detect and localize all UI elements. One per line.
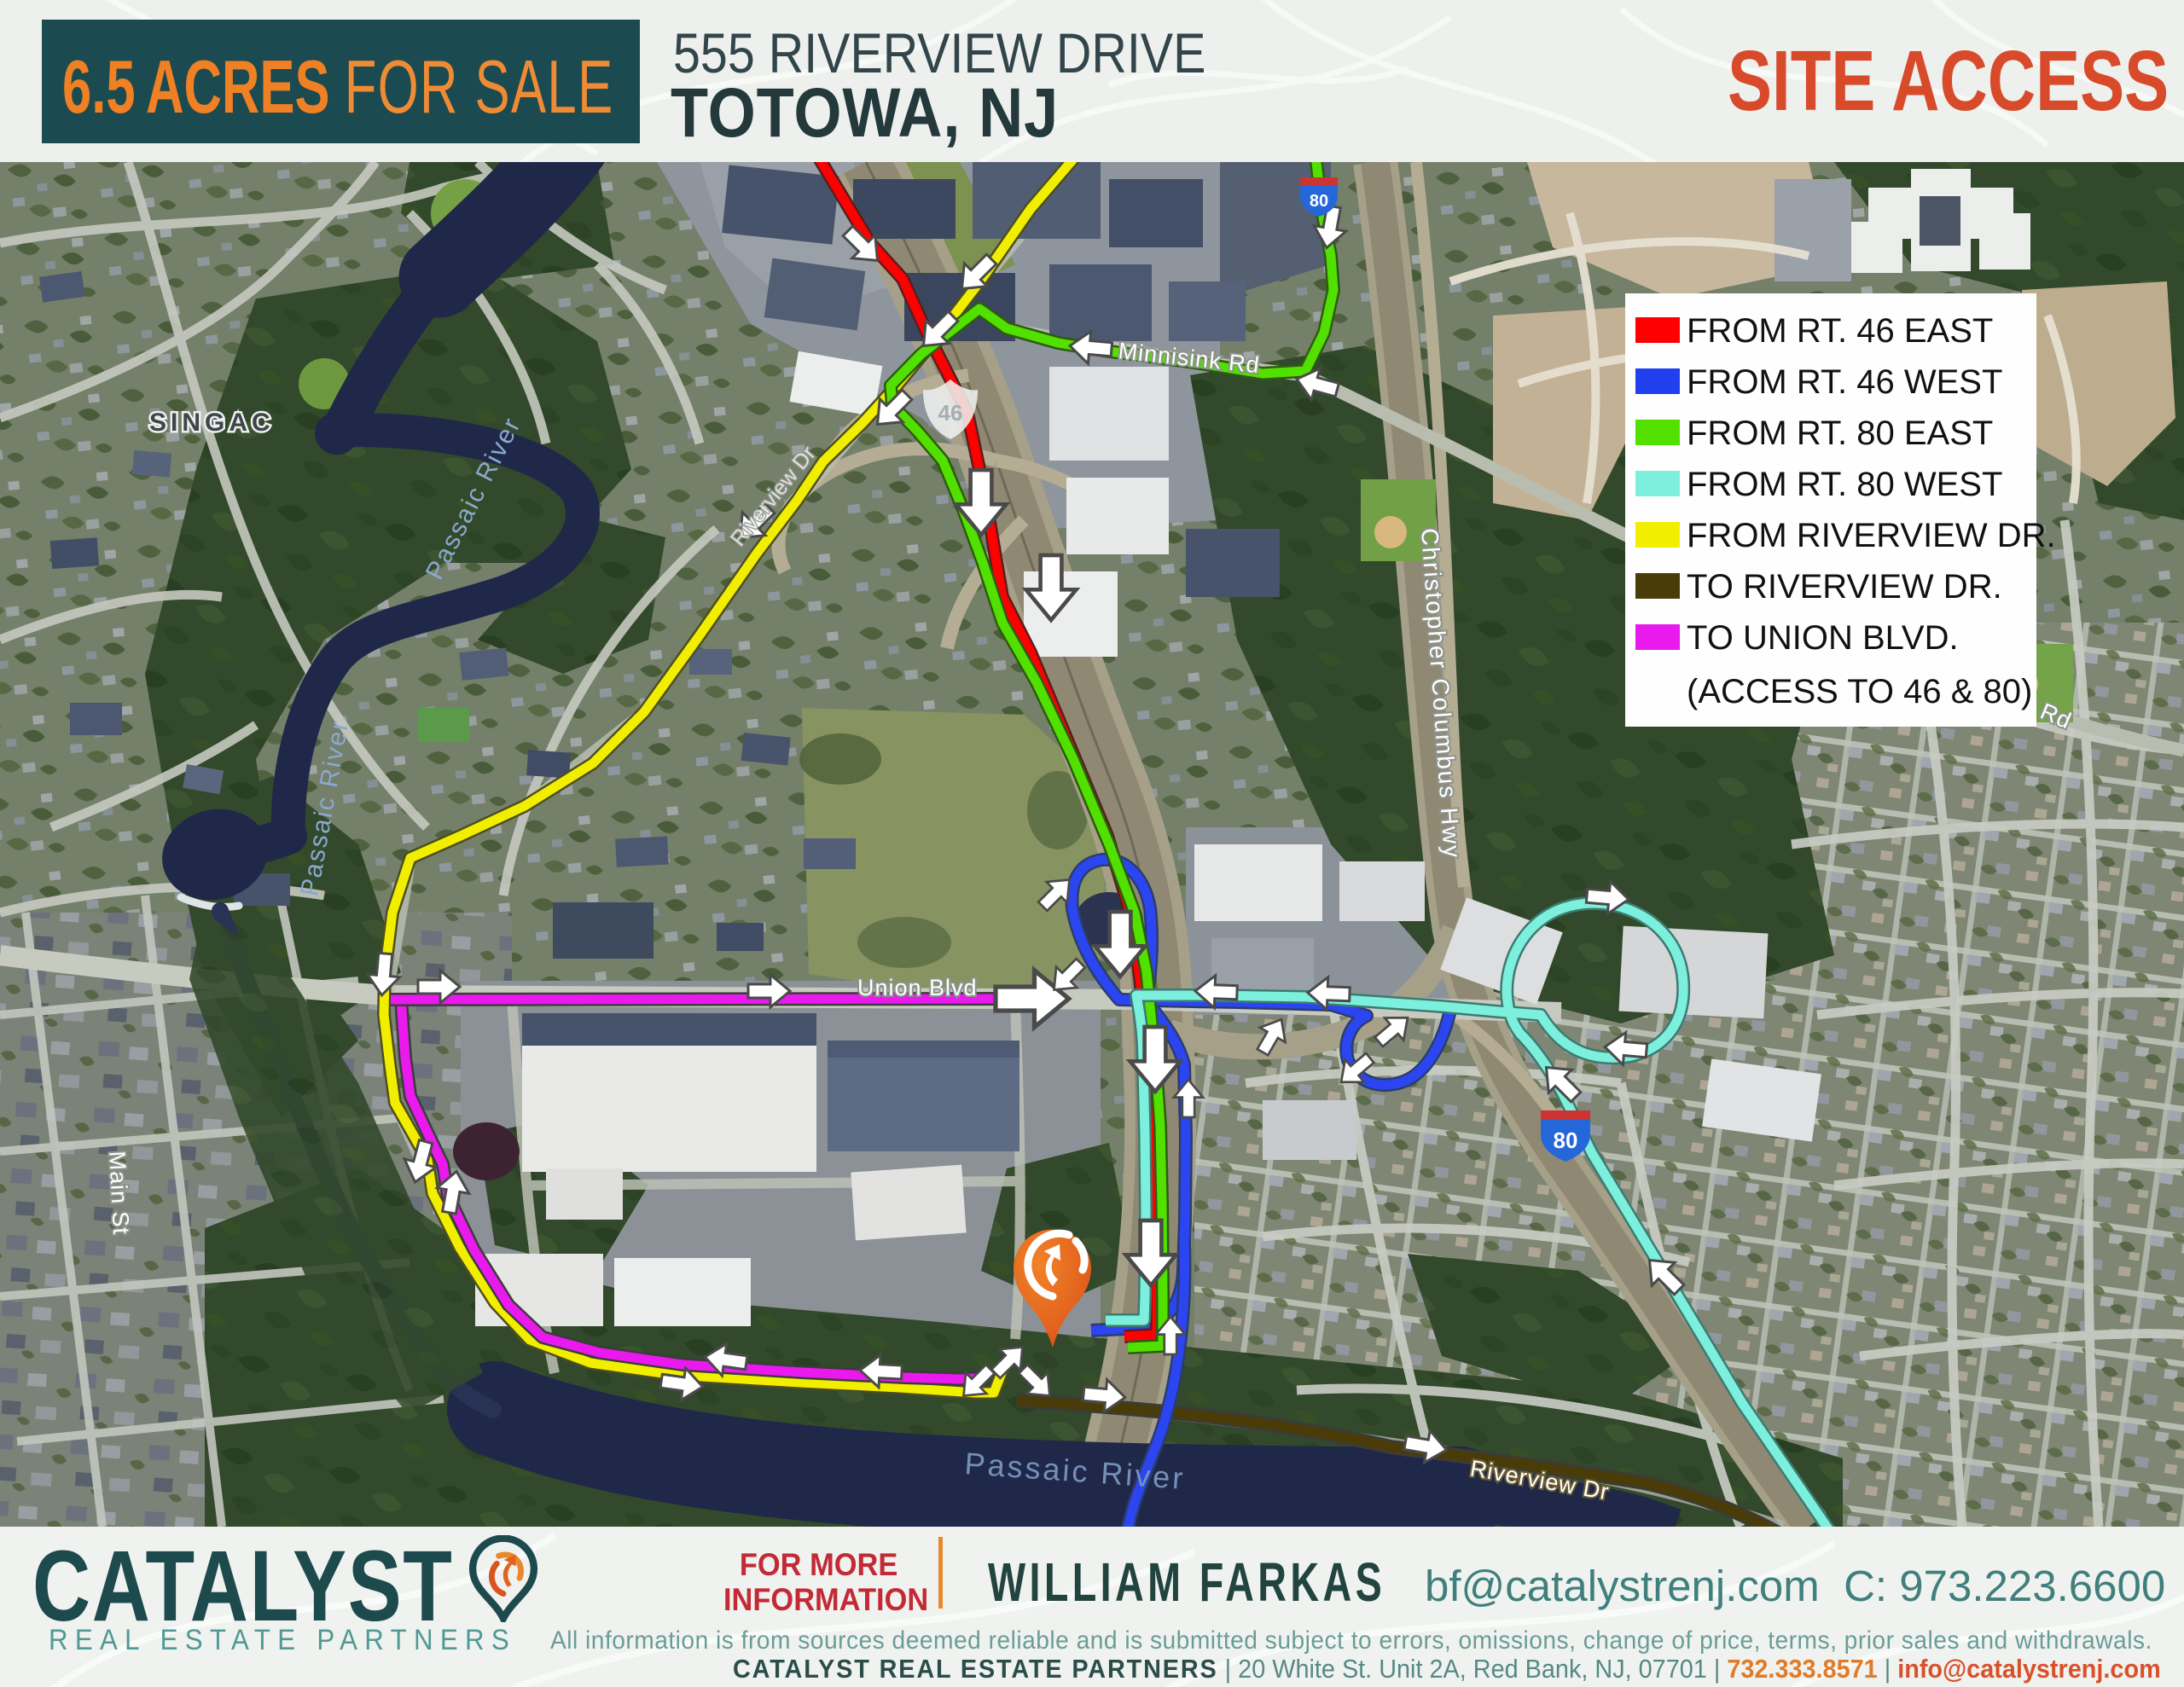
svg-text:FROM RT. 46 EAST: FROM RT. 46 EAST: [1687, 312, 1993, 350]
svg-text:80: 80: [1554, 1128, 1578, 1153]
svg-text:SINGAC: SINGAC: [149, 409, 275, 437]
svg-text:FROM RT. 80 WEST: FROM RT. 80 WEST: [1687, 466, 2002, 503]
svg-text:(ACCESS TO 46 & 80): (ACCESS TO 46 & 80): [1687, 673, 2032, 710]
svg-text:TO UNION BLVD.: TO UNION BLVD.: [1687, 619, 1959, 657]
svg-text:FROM RT. 46 WEST: FROM RT. 46 WEST: [1687, 363, 2002, 401]
svg-text:TO RIVERVIEW DR.: TO RIVERVIEW DR.: [1687, 568, 2002, 606]
svg-text:FROM RIVERVIEW DR.: FROM RIVERVIEW DR.: [1687, 517, 2056, 554]
svg-text:Union Blvd: Union Blvd: [857, 975, 978, 1000]
svg-text:80: 80: [1310, 192, 1328, 211]
svg-text:FROM RT. 80 EAST: FROM RT. 80 EAST: [1687, 415, 1993, 452]
svg-text:46: 46: [938, 400, 963, 426]
svg-text:Main St: Main St: [104, 1151, 134, 1236]
